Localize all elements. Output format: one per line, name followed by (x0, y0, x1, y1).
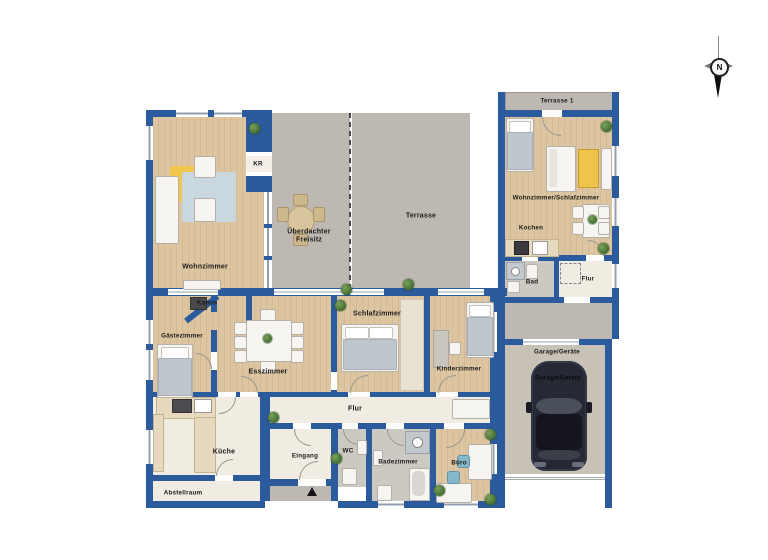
window (146, 126, 153, 160)
car-rear-window (538, 450, 580, 460)
window (214, 110, 242, 117)
stove-icon (172, 399, 192, 413)
dining-chair (234, 336, 247, 349)
label-wc: WC (343, 448, 354, 455)
dining-chair (598, 222, 610, 235)
compass-icon: N (710, 58, 729, 77)
label-wohnzimmer: Wohnzimmer (182, 264, 228, 271)
armchair (194, 156, 216, 178)
plant-icon (588, 215, 597, 224)
dining-chair (291, 322, 304, 335)
label-abstellraum: Abstellraum (164, 490, 203, 497)
toilet-icon (526, 264, 538, 279)
blanket (467, 317, 493, 356)
label-garage: Garage/Geräte (534, 349, 580, 356)
label-esszimmer: Esszimmer (249, 369, 288, 376)
dining-chair (260, 309, 276, 321)
label-garage-on-car: Garage/Geräte (535, 375, 581, 382)
dining-chair (572, 222, 584, 235)
label-flur: Flur (348, 406, 362, 413)
window (146, 320, 153, 344)
car-roof (536, 414, 582, 450)
door-opening (564, 297, 590, 303)
plant-icon (263, 334, 272, 343)
label-terrasse: Terrasse (406, 213, 436, 220)
sink-icon (507, 281, 520, 293)
label-wohnzimmer-schlafzimmer: Wohnzimmer/Schlafzimmer (513, 195, 600, 202)
window (523, 339, 579, 345)
plant-icon (341, 284, 352, 295)
window (350, 289, 384, 295)
window (176, 110, 208, 117)
entrance-door-opening (298, 479, 326, 486)
wall (498, 92, 505, 303)
window (612, 264, 619, 288)
plant-icon (403, 279, 414, 290)
window-terrace-door (274, 289, 344, 295)
blanket (507, 132, 533, 170)
blanket (158, 358, 192, 396)
label-flur-unit2: Flur (582, 276, 595, 283)
floorplan: N Wohnzimmer KR Überdachter Freisitz Ter… (0, 0, 768, 560)
car-mirror (586, 402, 592, 413)
car-mirror (526, 402, 532, 413)
label-buero: Büro (451, 460, 467, 467)
toilet-icon (342, 468, 357, 485)
plant-icon (335, 300, 346, 311)
pillow (369, 327, 393, 339)
label-kueche: Küche (213, 449, 235, 456)
pillow (345, 327, 369, 339)
sofa (155, 176, 179, 244)
room-terrasse (352, 113, 470, 290)
bathtub-inner (412, 471, 425, 496)
patio-chair (313, 207, 325, 222)
label-kr: KR (253, 161, 263, 168)
kitchen-counter (194, 417, 216, 473)
shower-drain-icon (412, 437, 423, 448)
room-ueberdachter-freisitz (272, 113, 350, 290)
wall (424, 296, 430, 392)
sink-icon (194, 399, 212, 413)
window-glass-wall (264, 192, 272, 288)
pillow (469, 305, 491, 317)
desk (433, 330, 449, 368)
label-schlafzimmer: Schlafzimmer (353, 311, 401, 318)
wall-chimney (246, 117, 272, 152)
car-windshield (536, 398, 582, 414)
wall (146, 110, 272, 117)
label-terrasse-1: Terrasse 1 (540, 98, 573, 105)
wardrobe (400, 299, 424, 391)
entrance-path (263, 486, 338, 501)
dining-chair (598, 206, 610, 219)
label-gaestezimmer: Gästezimmer (161, 333, 203, 340)
label-eingang: Eingang (292, 453, 318, 460)
plant-icon (331, 453, 342, 464)
kitchen-counter (153, 414, 164, 472)
wall (264, 224, 272, 228)
sink-icon (357, 440, 367, 455)
window (612, 198, 619, 226)
hall-bench (452, 399, 490, 419)
dining-chair (234, 350, 247, 363)
terrace-divider-dashed-line (349, 113, 351, 290)
garage-forecourt (505, 303, 612, 339)
sofa-back (549, 149, 557, 187)
dining-chair (291, 350, 304, 363)
window (612, 146, 619, 176)
wall (498, 297, 619, 303)
shower-drain-icon (511, 267, 520, 276)
label-kamin: Kamin (197, 300, 217, 307)
label-ueberdachter-freisitz: Überdachter Freisitz (282, 229, 336, 246)
sink-icon (532, 241, 548, 255)
window (146, 430, 153, 464)
sideboard (601, 148, 612, 190)
label-badezimmer: Badezimmer (378, 459, 417, 466)
wall (146, 475, 265, 481)
desk (468, 444, 492, 480)
sideboard (183, 280, 221, 290)
dining-chair (572, 206, 584, 219)
stove-icon (514, 241, 529, 255)
plant-icon (268, 412, 279, 423)
plant-icon (485, 429, 496, 440)
wall (264, 256, 272, 260)
wall (554, 261, 559, 299)
door-opening (331, 372, 337, 390)
wall (146, 501, 265, 508)
chair (449, 342, 461, 355)
label-bad: Bad (526, 279, 539, 286)
garage-door (505, 475, 605, 482)
window (146, 350, 153, 380)
label-kochen: Kochen (519, 225, 543, 232)
window (438, 289, 484, 295)
label-kinderzimmer: Kinderzimmer (437, 366, 481, 373)
compass-north-label: N (717, 63, 723, 72)
plant-icon (249, 123, 260, 134)
wall (366, 429, 372, 501)
plant-icon (601, 121, 612, 132)
toilet-icon (377, 485, 392, 501)
car-headlight (572, 462, 584, 467)
armchair (194, 198, 216, 222)
attic-hatch-dashed (560, 263, 581, 284)
plant-icon (485, 494, 496, 505)
compass-south-needle (714, 74, 722, 98)
dining-chair (234, 322, 247, 335)
wall (605, 339, 612, 508)
door-opening (542, 110, 562, 117)
blanket (343, 339, 397, 370)
patio-chair (293, 194, 308, 206)
room-wohnzimmer-niche (246, 192, 264, 288)
plant-icon (598, 243, 609, 254)
entrance-arrow-icon (307, 487, 317, 496)
wardrobe-yellow (578, 149, 599, 188)
patio-chair (277, 207, 289, 222)
dining-chair (291, 336, 304, 349)
office-chair (447, 471, 460, 484)
car-headlight (534, 462, 546, 467)
plant-icon (434, 485, 445, 496)
wall-chimney (246, 176, 272, 192)
window (378, 501, 404, 508)
